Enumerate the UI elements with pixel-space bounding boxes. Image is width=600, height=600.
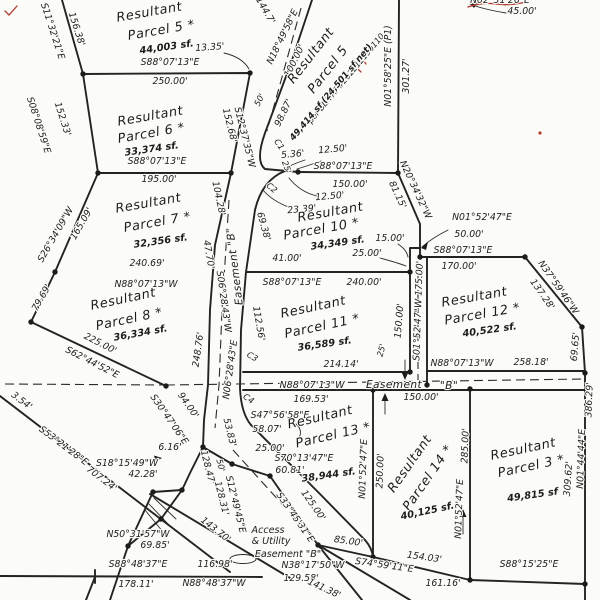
distance-label: 12.50' (315, 190, 345, 204)
curve-label: C3 (245, 349, 260, 363)
distance-label: 161.16' (425, 578, 460, 589)
distance-label: 143.70' (198, 515, 232, 545)
distance-label: 94.00' (175, 390, 201, 420)
distance-label: 141.38' (306, 576, 342, 600)
distance-label: 250.00' (152, 76, 187, 87)
distance-label: 41.00' (272, 253, 301, 264)
distance-label: 156.38' (66, 11, 87, 48)
distance-label: 195.00' (141, 174, 176, 185)
parcel-area: 49,815 sf (505, 486, 560, 504)
bearing-label: S88°15'25"E (500, 559, 559, 570)
bearing-label: S08°08'59"E (24, 96, 53, 155)
distance-label: 5.36' (281, 148, 305, 161)
width-label: 25' (375, 343, 388, 358)
distance-label: 53.83' (221, 417, 239, 448)
easement-label: Easement (366, 379, 423, 391)
bearing-label: S53°21'28"E (37, 424, 91, 468)
distance-label: 116.98' (197, 559, 232, 570)
curve-label: C2 (264, 180, 279, 195)
bearing-label: S01°52'47"W 175.00' (411, 261, 425, 361)
distance-label: 6.16' (158, 442, 181, 453)
distance-label: 250.00' (374, 453, 386, 488)
distance-label: 15.00' (375, 233, 404, 244)
distance-label: 60.81' (275, 465, 304, 476)
distance-label: 285.00' (459, 428, 471, 463)
bearing-label: S88°48'37"E (109, 559, 168, 570)
bearing-label: N01°44'44"E (575, 429, 588, 489)
easement-label: Access (250, 525, 284, 536)
distance-label: 240.69' (129, 258, 164, 269)
access-easement-leader (230, 555, 256, 564)
distance-label: 42.28' (128, 469, 157, 480)
distance-label: 150.00' (393, 303, 407, 339)
easement-label: Easement "B" (255, 549, 321, 560)
distance-label: 214.14' (323, 359, 358, 370)
bearing-label: S88°07'13"E (263, 277, 322, 288)
distance-label: 144.7' (253, 0, 277, 26)
distance-label: 81.15' (386, 179, 408, 210)
distance-label: 69.65' (569, 332, 583, 362)
bearing-label: N38°17'50"W (281, 560, 345, 571)
distance-label: 309.62' (562, 461, 575, 497)
distance-label: 3.54' (9, 390, 34, 413)
bearing-label: S88°07'13"E (434, 245, 493, 256)
bearing-label: N01°52'47"E (453, 479, 466, 539)
bearing-label: N88°48'37"W (182, 578, 246, 589)
bearing-label: N06°28'43"E (221, 339, 240, 400)
distance-label: 152.33' (52, 101, 73, 138)
distance-label: 45.00' (507, 6, 536, 17)
bearing-label: S88°07'13"E (128, 156, 187, 167)
parcel-area: 32,356 sf. (133, 232, 189, 250)
bearing-label: S70°13'47"E (275, 453, 334, 464)
distance-label: 240.00' (346, 277, 381, 288)
width-label: 50' (214, 458, 227, 473)
distance-label: 58.07' (252, 424, 281, 435)
bearing-label: N88°07'13"W (430, 358, 494, 369)
parcel-area: 44,003 sf. (138, 38, 194, 57)
plat-map: S11°32'21"E156.38'ResultantParcel 5 *44,… (0, 0, 600, 600)
distance-label: 150.00' (332, 179, 367, 190)
bearing-label: N50°31'57"W (106, 529, 170, 540)
bearing-label: S11°32'21"E (38, 2, 67, 61)
distance-label: 50.00' (454, 229, 483, 240)
bearing-label: S88°07'13"E (141, 57, 200, 68)
easement-label: & Utility (252, 536, 291, 547)
distance-label: 13.35' (195, 41, 225, 54)
distance-label: 169.53' (293, 394, 328, 405)
distance-label: 79.69' (30, 282, 54, 313)
bearing-label: N88°07'13"W (279, 380, 345, 391)
distance-label: 25.00' (352, 248, 381, 259)
distance-label: 12.50' (318, 143, 348, 157)
distance-label: 104.28' (209, 180, 227, 217)
width-label: 50' (252, 92, 267, 108)
distance-label: 47.70' (201, 239, 217, 270)
easement-label: "B" (440, 380, 458, 392)
distance-label: 112.56' (250, 305, 267, 341)
bearing-label: N01°58'25"E (P1) (383, 25, 394, 107)
distance-label: 301.27' (401, 58, 412, 93)
bearing-label: S88°07'13"E (314, 161, 373, 172)
bearing-label: S18°15'49"W (96, 458, 159, 469)
distance-label: 258.18' (513, 357, 548, 368)
curve-label: C4 (241, 391, 256, 406)
labels-layer: S11°32'21"E156.38'ResultantParcel 5 *44,… (9, 0, 596, 600)
distance-label: 386.29' (583, 382, 595, 417)
distance-label: 150.00' (403, 392, 438, 403)
distance-label: 69.85' (140, 540, 169, 551)
distance-label: 248.76' (191, 332, 207, 368)
distance-label: 85.00' (333, 534, 363, 549)
bearing-label: N01°52'47"E (357, 439, 370, 499)
parcel-area: 38,944 sf. (301, 466, 357, 484)
parcel-area: 36,589 sf. (297, 335, 353, 353)
distance-label: 178.11' (118, 579, 153, 590)
plat-scan-page: S11°32'21"E156.38'ResultantParcel 5 *44,… (0, 0, 600, 600)
distance-label: 170.00' (441, 261, 476, 272)
bearing-label: N01°52'47"E (452, 212, 512, 223)
distance-label: 69.38' (254, 211, 273, 242)
